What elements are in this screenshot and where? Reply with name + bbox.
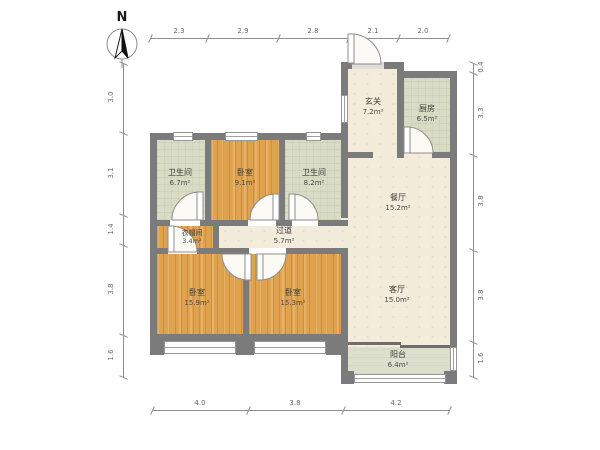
door-leaf	[245, 254, 251, 280]
door-layer	[0, 0, 600, 450]
room-label-entry: 玄关7.2m²	[363, 97, 384, 117]
room-label-bedroom-middle: 卧室15.3m²	[280, 288, 305, 308]
floor-plan: N	[0, 0, 600, 450]
room-label-dining: 餐厅15.2m²	[385, 193, 410, 213]
north-compass: N	[98, 6, 146, 70]
door-leaf	[289, 194, 295, 220]
room-label-bedroom-top: 卧室9.1m²	[235, 168, 256, 188]
door-bedroom-middle	[260, 254, 286, 280]
door-leaf	[404, 127, 410, 153]
room-label-balcony: 阳台6.4m²	[388, 350, 409, 370]
compass-needle-east	[122, 29, 128, 58]
door-leaf	[273, 194, 279, 220]
room-label-living: 客厅15.0m²	[384, 285, 409, 305]
room-label-bathroom-2: 卫生间8.2m²	[302, 168, 326, 188]
door-leaf	[348, 34, 354, 63]
compass-n-label: N	[117, 10, 128, 25]
room-label-bathroom-1: 卫生间6.7m²	[168, 168, 192, 188]
compass-needle-west	[115, 29, 122, 58]
door-bathroom-2	[292, 194, 318, 220]
door-bedroom-left	[222, 254, 248, 280]
door-entry	[351, 34, 381, 64]
door-bedroom-top	[250, 194, 276, 220]
room-label-kitchen: 厨房6.5m²	[417, 104, 438, 124]
door-kitchen	[407, 127, 433, 153]
door-leaf	[257, 254, 263, 280]
room-label-cloakroom: 衣帽间3.4m²	[182, 229, 203, 245]
room-label-hallway: 过道5.7m²	[274, 226, 295, 246]
door-bathroom-1	[172, 192, 200, 220]
door-leaf	[168, 226, 174, 252]
room-label-bedroom-left: 卧室15.9m²	[184, 288, 209, 308]
door-leaf	[197, 192, 203, 220]
